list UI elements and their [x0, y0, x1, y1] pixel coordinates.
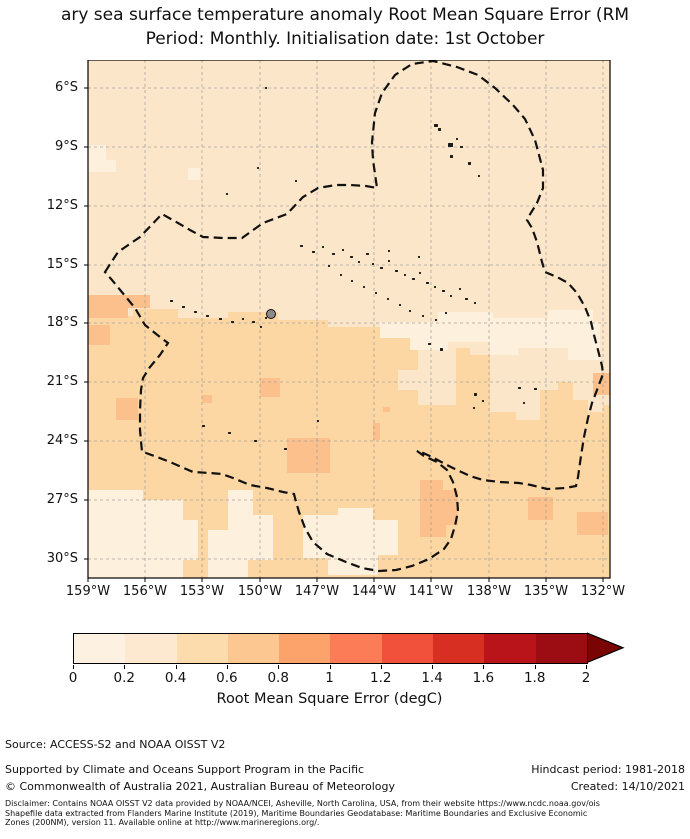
x-axis-tick-label: 132°W: [571, 584, 635, 599]
island: [260, 326, 262, 328]
colorbar-tick-label: 0.6: [202, 670, 252, 686]
y-axis-tick-label: 12°S: [0, 197, 78, 215]
x-axis-tick-label: 141°W: [399, 584, 463, 599]
island: [388, 250, 390, 252]
island: [226, 193, 228, 195]
chart-subtitle: Period: Monthly. Initialisation date: 1s…: [0, 29, 690, 49]
colorbar-segment: [330, 634, 381, 663]
colorbar-tick-label: 1.2: [356, 670, 406, 686]
island: [252, 321, 255, 323]
colorbar-tickmark: [124, 665, 125, 669]
island: [265, 87, 267, 89]
colorbar-tickmark: [381, 665, 382, 669]
island: [445, 312, 447, 314]
island: [434, 124, 438, 127]
island: [340, 274, 342, 276]
disclaimer-text: Disclaimer: Contains NOAA OISST V2 data …: [5, 799, 690, 828]
colorbar-tick-label: 2: [561, 670, 611, 686]
island: [442, 290, 445, 292]
created-text: Created: 14/10/2021: [571, 780, 685, 793]
colorbar-arrow-triangle: [587, 633, 623, 663]
colorbar-tickmark: [586, 665, 587, 669]
source-text: Source: ACCESS-S2 and NOAA OISST V2: [5, 738, 225, 751]
chart-title: ary sea surface temperature anomaly Root…: [0, 5, 690, 25]
island: [534, 388, 537, 390]
rmse-patch-high: [88, 325, 110, 345]
island: [412, 278, 415, 280]
rmse-patch-high: [287, 438, 330, 473]
colorbar-tick-label: 0.2: [99, 670, 149, 686]
island: [257, 167, 259, 169]
island: [459, 288, 461, 290]
colorbar-tickmark: [278, 665, 279, 669]
island-tahiti: [267, 310, 276, 319]
supported-text: Supported by Climate and Oceans Support …: [5, 763, 364, 776]
colorbar-tick-label: 1.6: [458, 670, 508, 686]
island: [478, 175, 480, 177]
island: [372, 263, 374, 265]
rmse-patch-high: [383, 407, 390, 412]
rmse-patch-high: [116, 398, 138, 420]
island: [366, 253, 369, 255]
island: [284, 448, 287, 450]
island: [295, 180, 297, 182]
y-axis-tick-label: 27°S: [0, 491, 78, 509]
rmse-patch-high: [260, 378, 280, 397]
disclaimer-line: Disclaimer: Contains NOAA OISST V2 data …: [5, 799, 690, 809]
colorbar-tickmark: [330, 665, 331, 669]
island: [419, 272, 421, 274]
island: [474, 302, 476, 304]
island: [468, 162, 471, 165]
x-axis-tick-label: 153°W: [170, 584, 234, 599]
y-axis-tick-label: 6°S: [0, 79, 78, 97]
rmse-patch-high: [373, 423, 380, 440]
colorbar-segment: [382, 634, 433, 663]
rmse-patch-high: [202, 395, 212, 403]
x-axis-tick-label: 147°W: [285, 584, 349, 599]
island: [482, 400, 484, 402]
island: [375, 292, 377, 294]
island: [473, 407, 475, 409]
island: [422, 315, 424, 317]
island: [202, 425, 205, 427]
island: [418, 256, 420, 258]
island: [358, 261, 360, 263]
colorbar-tick-label: 0.8: [253, 670, 303, 686]
colorbar-segment: [484, 634, 535, 663]
y-axis-tick-label: 21°S: [0, 373, 78, 391]
island: [332, 253, 335, 255]
x-axis-tick-label: 144°W: [342, 584, 406, 599]
island: [456, 138, 458, 140]
colorbar-tick-label: 1: [305, 670, 355, 686]
colorbar-tickmark: [73, 665, 74, 669]
x-axis-tick-label: 138°W: [457, 584, 521, 599]
rmse-patch-low: [188, 168, 200, 180]
island: [228, 432, 231, 434]
island: [523, 402, 525, 404]
island: [440, 348, 443, 351]
island: [438, 128, 441, 131]
copyright-text: © Commonwealth of Australia 2021, Austra…: [5, 780, 395, 793]
colorbar-tick-label: 0: [48, 670, 98, 686]
island: [194, 311, 197, 313]
colorbar-segment: [228, 634, 279, 663]
island: [395, 270, 398, 272]
island: [448, 143, 453, 147]
colorbar-segment: [74, 634, 125, 663]
hindcast-text: Hindcast period: 1981-2018: [531, 763, 685, 776]
x-axis-tick-label: 150°W: [228, 584, 292, 599]
island: [351, 280, 353, 282]
island: [426, 282, 429, 284]
island: [328, 265, 330, 267]
colorbar-segment: [279, 634, 330, 663]
island: [242, 318, 244, 320]
colorbar-tickmark: [483, 665, 484, 669]
x-axis-tick-label: 156°W: [113, 584, 177, 599]
y-axis-tick-label: 18°S: [0, 314, 78, 332]
y-axis-tick-label: 24°S: [0, 432, 78, 450]
island: [460, 146, 463, 148]
island: [265, 317, 267, 319]
rmse-patch-low: [88, 490, 198, 578]
island: [404, 274, 406, 276]
colorbar-tick-label: 1.8: [510, 670, 560, 686]
island: [300, 245, 303, 247]
island: [322, 246, 324, 248]
island: [254, 440, 257, 442]
island: [388, 260, 390, 262]
colorbar-label: Root Mean Square Error (degC): [73, 691, 586, 707]
map-svg: [84, 60, 618, 584]
island: [518, 387, 521, 389]
colorbar-segment: [433, 634, 484, 663]
island: [399, 304, 401, 306]
colorbar-extend-arrow: [587, 632, 629, 664]
island: [182, 306, 185, 308]
y-axis-tick-label: 9°S: [0, 138, 78, 156]
island: [465, 298, 468, 300]
island: [206, 315, 209, 317]
x-axis-tick-label: 159°W: [56, 584, 120, 599]
disclaimer-line: Shapefile data extracted from Flanders M…: [5, 809, 690, 819]
disclaimer-line: Zones (200NM), version 11. Available onl…: [5, 818, 690, 828]
colorbar-tick-label: 1.4: [407, 670, 457, 686]
island: [231, 321, 234, 323]
island: [219, 318, 222, 320]
rmse-patch-high: [528, 497, 553, 520]
island: [317, 420, 319, 422]
island: [342, 249, 344, 251]
colorbar-tickmark: [432, 665, 433, 669]
colorbar-tickmark: [176, 665, 177, 669]
island: [450, 155, 453, 158]
colorbar-tick-label: 0.4: [151, 670, 201, 686]
island: [350, 256, 353, 258]
colorbar-tickmark: [535, 665, 536, 669]
island: [312, 251, 315, 253]
island: [409, 310, 411, 312]
island: [450, 295, 452, 297]
island: [170, 300, 173, 302]
colorbar-segment: [177, 634, 228, 663]
island: [387, 298, 389, 300]
island: [428, 343, 431, 345]
island: [380, 267, 383, 269]
colorbar-segment: [536, 634, 587, 663]
colorbar-tickmark: [227, 665, 228, 669]
x-axis-tick-label: 135°W: [514, 584, 578, 599]
figure: ary sea surface temperature anomaly Root…: [0, 0, 690, 839]
y-axis-tick-label: 15°S: [0, 256, 78, 274]
island: [363, 286, 365, 288]
island: [474, 393, 477, 396]
island: [435, 319, 437, 321]
island: [434, 286, 436, 288]
map-plot: [84, 60, 618, 584]
y-axis-tick-label: 30°S: [0, 550, 78, 568]
colorbar-segment: [125, 634, 176, 663]
colorbar: [73, 633, 588, 664]
